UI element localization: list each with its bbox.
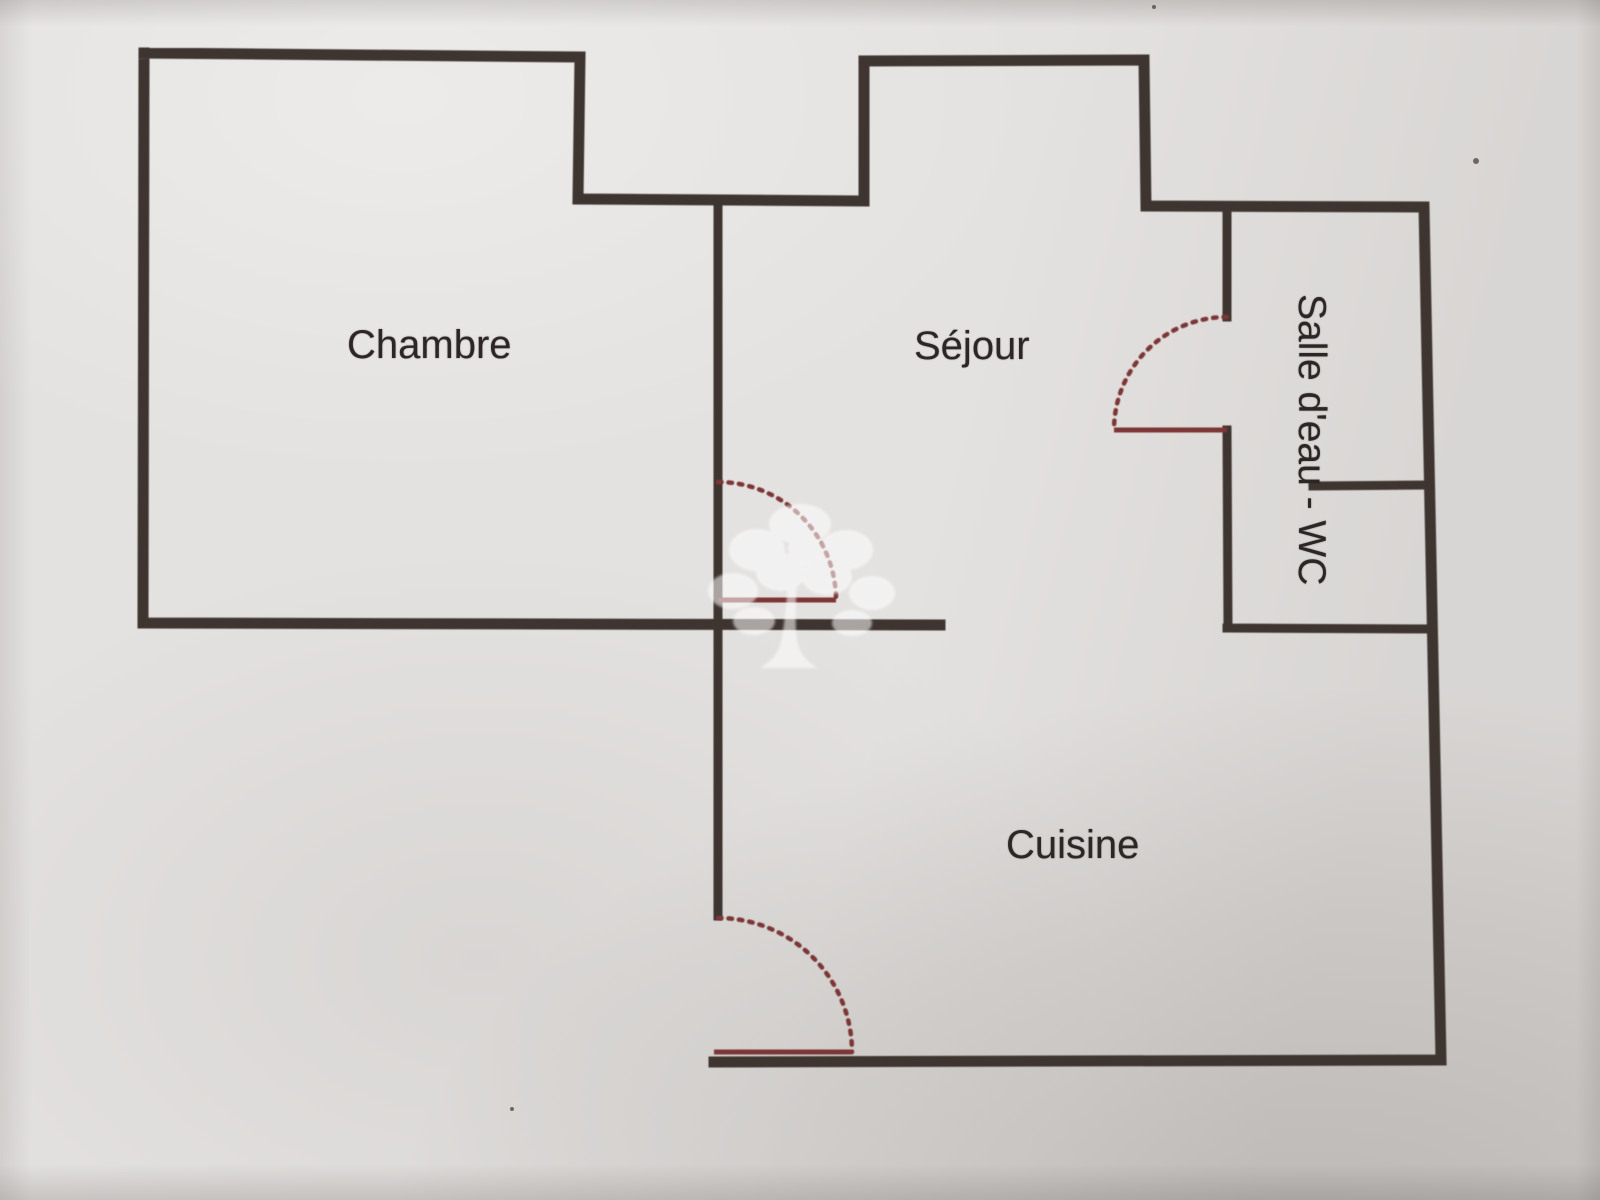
paper-specks: [510, 5, 1479, 1111]
floor-plan-scan: Chambre Séjour Salle d'eau - WC Cuisine: [0, 0, 1600, 1200]
room-label-chambre: Chambre: [347, 325, 512, 365]
paper-speck: [510, 1107, 514, 1111]
tree-watermark-icon: [708, 504, 895, 668]
paper-speck: [1152, 5, 1156, 9]
paper-speck: [1473, 158, 1479, 164]
doors-layer: [714, 317, 1227, 1052]
room-label-cuisine: Cuisine: [1006, 825, 1139, 865]
room-label-salle-eau-wc: Salle d'eau - WC: [1292, 294, 1331, 585]
door-arc-salle-eau: [1114, 317, 1227, 430]
floor-plan-drawing: [0, 0, 1600, 1200]
door-arc-cuisine: [718, 918, 852, 1052]
room-label-sejour: Séjour: [914, 326, 1030, 366]
